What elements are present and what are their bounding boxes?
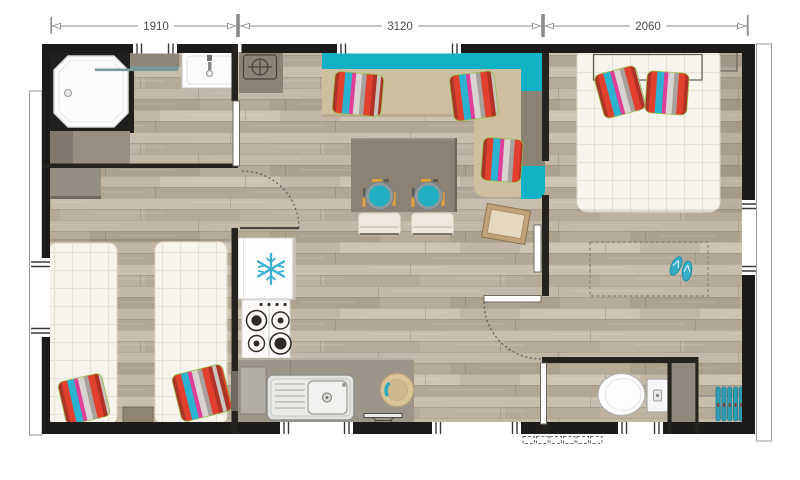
svg-text:2060: 2060 [635,21,661,33]
svg-text:3120: 3120 [387,21,413,33]
svg-text:1910: 1910 [143,21,169,33]
